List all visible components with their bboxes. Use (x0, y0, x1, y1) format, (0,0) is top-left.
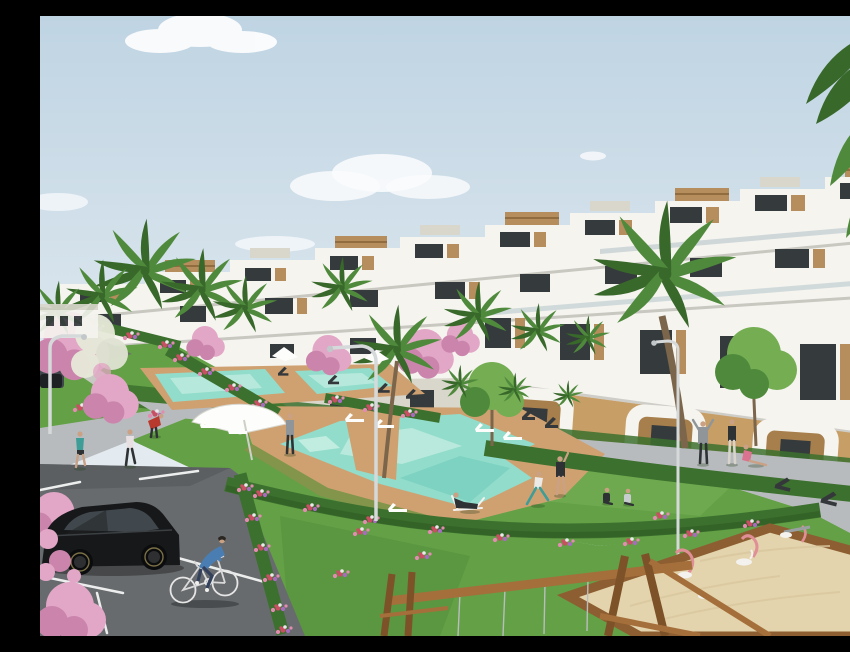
architectural-rendering: Sunny 3D architectural rendering of a mo… (40, 16, 850, 636)
distant-left-building (40, 304, 98, 338)
